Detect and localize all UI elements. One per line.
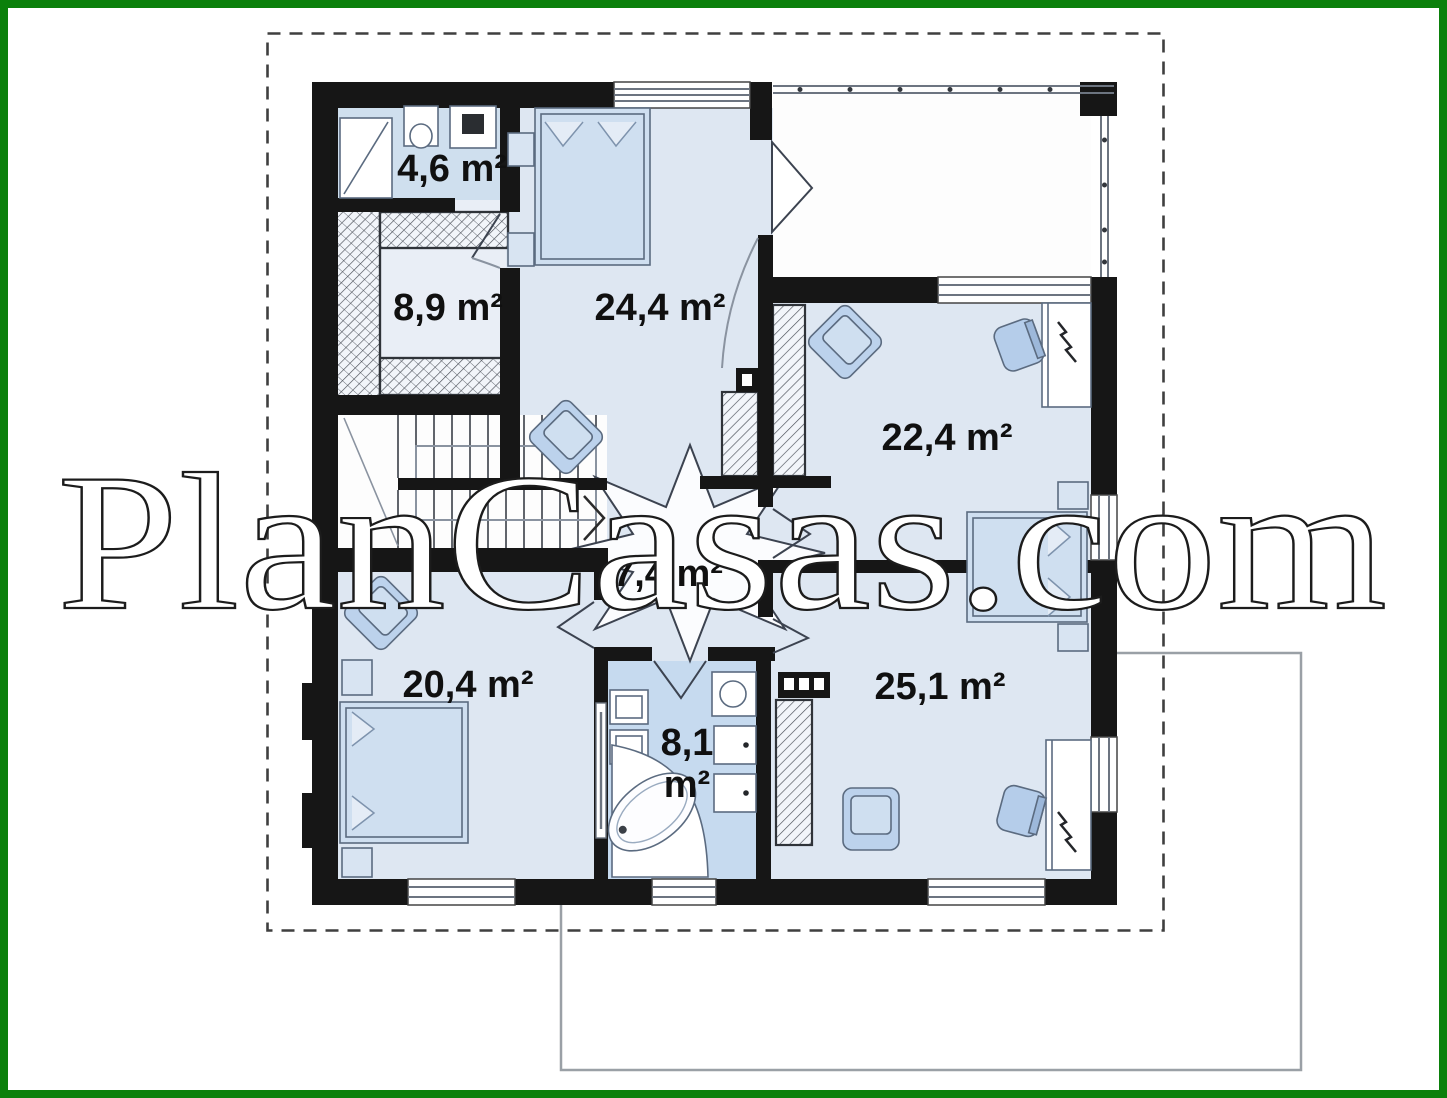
window-bottom-3 — [928, 879, 1045, 905]
nightstand — [508, 233, 534, 266]
terrace-pillar — [1080, 82, 1117, 116]
window-terrace-wall — [938, 277, 1091, 303]
dryer — [714, 774, 756, 812]
wall-corner-ne — [1091, 277, 1117, 303]
floor-plan-page: 4,6 m² 8,9 m² 24,4 m² 22,4 m² 7,4 m² 20,… — [0, 0, 1447, 1098]
room-label-bedroom-left: 20,4 m² — [403, 664, 534, 706]
flue-box-inner — [742, 374, 752, 386]
window-bottom-1 — [408, 879, 515, 905]
wall-left-pilaster-2 — [302, 793, 312, 848]
wall-terrace-door-jamb — [750, 82, 772, 140]
nightstand — [342, 660, 372, 695]
wall-bottom-4 — [1045, 879, 1117, 905]
nightstand — [342, 848, 372, 877]
wardrobe-bedroom-bottom — [776, 700, 812, 845]
wardrobe-89-left — [336, 210, 380, 397]
floor-terrace — [773, 82, 1091, 277]
wall-top — [312, 82, 614, 108]
wall-bottom-3 — [716, 879, 928, 905]
room-label-bathroom-main-line1: 8,1 — [661, 722, 714, 764]
wall-bottom-1 — [312, 879, 408, 905]
window-top — [614, 82, 750, 108]
room-label-bathroom-small: 4,6 m² — [397, 148, 507, 190]
wall-bath-main-right — [756, 655, 771, 879]
nightstand — [508, 133, 534, 166]
wall-v1b — [500, 268, 520, 415]
radiator — [778, 672, 830, 698]
washer — [714, 726, 756, 764]
armchair-bedroom-bottom — [843, 788, 899, 850]
room-label-bedroom-top: 24,4 m² — [595, 287, 726, 329]
wall-bath-small-bottom — [336, 198, 455, 212]
room-label-bathroom-main-line2: m² — [664, 764, 710, 806]
floor-plan-drawing: 4,6 m² 8,9 m² 24,4 m² 22,4 m² 7,4 m² 20,… — [0, 0, 1447, 1098]
wall-wardrobe-bottom — [312, 395, 520, 415]
wall-left-pilaster-1 — [302, 683, 312, 740]
room-label-wardrobe-room: 8,9 m² — [393, 287, 503, 329]
wall-bottom-2 — [515, 879, 652, 905]
window-right-lower — [1091, 737, 1117, 812]
sliding-door-bathroom — [596, 703, 606, 838]
desk-bedroom-right — [1042, 303, 1091, 407]
window-bottom-2 — [652, 879, 716, 905]
watermark-text: PlanCasas.com — [57, 434, 1387, 651]
wall-terrace-bottom — [762, 277, 938, 303]
wardrobe-89-bottom — [380, 358, 508, 395]
room-label-bedroom-bottom: 25,1 m² — [875, 666, 1006, 708]
